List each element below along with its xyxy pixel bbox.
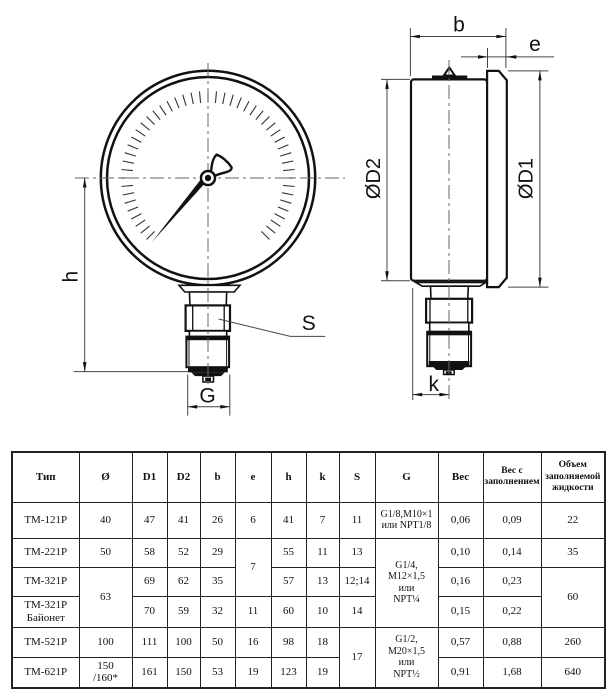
svg-text:G: G <box>199 385 215 408</box>
svg-text:b: b <box>453 14 465 37</box>
svg-text:ØD1: ØD1 <box>515 158 537 199</box>
svg-text:k: k <box>429 373 440 396</box>
svg-text:S: S <box>302 312 316 335</box>
svg-text:h: h <box>60 271 83 283</box>
svg-text:ØD2: ØD2 <box>363 158 385 199</box>
svg-text:e: e <box>529 33 541 56</box>
